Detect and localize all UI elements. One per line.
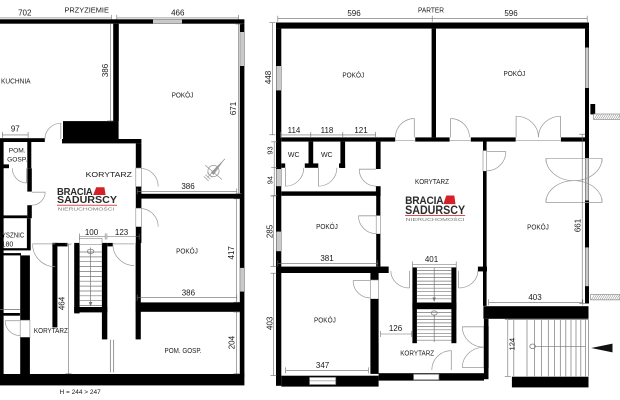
svg-text:124: 124 (507, 338, 516, 351)
svg-text:POM. GOSP.: POM. GOSP. (165, 346, 202, 355)
svg-text:WC: WC (288, 152, 300, 159)
svg-text:114: 114 (288, 126, 301, 135)
svg-text:93: 93 (265, 146, 274, 154)
svg-text:POKÓJ: POKÓJ (172, 91, 194, 100)
svg-text:126: 126 (389, 324, 403, 333)
svg-text:KORYTARZ: KORYTARZ (415, 177, 450, 186)
svg-text:403: 403 (265, 316, 274, 330)
svg-text:GOSP.: GOSP. (7, 157, 27, 164)
svg-text:381: 381 (320, 254, 334, 263)
svg-text:417: 417 (227, 246, 236, 260)
svg-text:POKÓJ: POKÓJ (176, 247, 198, 256)
svg-text:466: 466 (171, 8, 185, 17)
svg-text:180: 180 (2, 241, 14, 248)
svg-text:204: 204 (227, 335, 236, 349)
svg-text:401: 401 (425, 255, 439, 264)
svg-text:POKÓJ: POKÓJ (527, 223, 549, 232)
svg-text:121: 121 (354, 126, 368, 135)
svg-text:118: 118 (321, 126, 334, 135)
svg-text:WC: WC (321, 152, 333, 159)
svg-text:KORYTARZ: KORYTARZ (86, 170, 133, 179)
svg-text:671: 671 (229, 101, 238, 115)
svg-text:285: 285 (265, 224, 274, 238)
svg-text:464: 464 (57, 296, 66, 310)
svg-text:NIERUCHOMOŚCI: NIERUCHOMOŚCI (406, 215, 465, 222)
svg-text:386: 386 (182, 288, 196, 297)
svg-text:PARTER: PARTER (418, 6, 444, 15)
svg-text:347: 347 (316, 361, 330, 370)
svg-text:PRZYZIEMIE: PRZYZIEMIE (64, 6, 108, 15)
svg-text:100: 100 (85, 228, 99, 237)
svg-text:SADURSCY: SADURSCY (57, 194, 117, 206)
svg-text:386: 386 (181, 182, 195, 191)
svg-text:POM.: POM. (9, 148, 26, 155)
svg-text:POKÓJ: POKÓJ (504, 69, 526, 78)
svg-text:PRYSZNIC: PRYSZNIC (0, 232, 24, 239)
svg-text:POKÓJ: POKÓJ (314, 316, 336, 325)
svg-text:661: 661 (573, 218, 582, 232)
svg-text:94: 94 (265, 176, 274, 184)
svg-text:POKÓJ: POKÓJ (342, 70, 364, 79)
svg-text:97: 97 (11, 125, 20, 134)
svg-text:POKÓJ: POKÓJ (316, 222, 338, 231)
svg-text:SADURSCY: SADURSCY (405, 204, 465, 217)
svg-text:596: 596 (347, 9, 361, 18)
svg-text:H = 244 > 247: H = 244 > 247 (60, 389, 102, 396)
svg-text:NIERUCHOMOŚCI: NIERUCHOMOŚCI (58, 206, 115, 211)
svg-text:KUCHNIA: KUCHNIA (1, 76, 31, 85)
svg-text:403: 403 (528, 293, 542, 302)
svg-text:702: 702 (18, 8, 32, 17)
svg-text:596: 596 (504, 9, 518, 18)
svg-text:KORYTARZ: KORYTARZ (400, 349, 435, 358)
svg-text:KORYTARZ: KORYTARZ (34, 326, 69, 335)
svg-text:448: 448 (264, 70, 273, 84)
svg-text:386: 386 (101, 63, 110, 77)
svg-text:123: 123 (115, 228, 129, 237)
